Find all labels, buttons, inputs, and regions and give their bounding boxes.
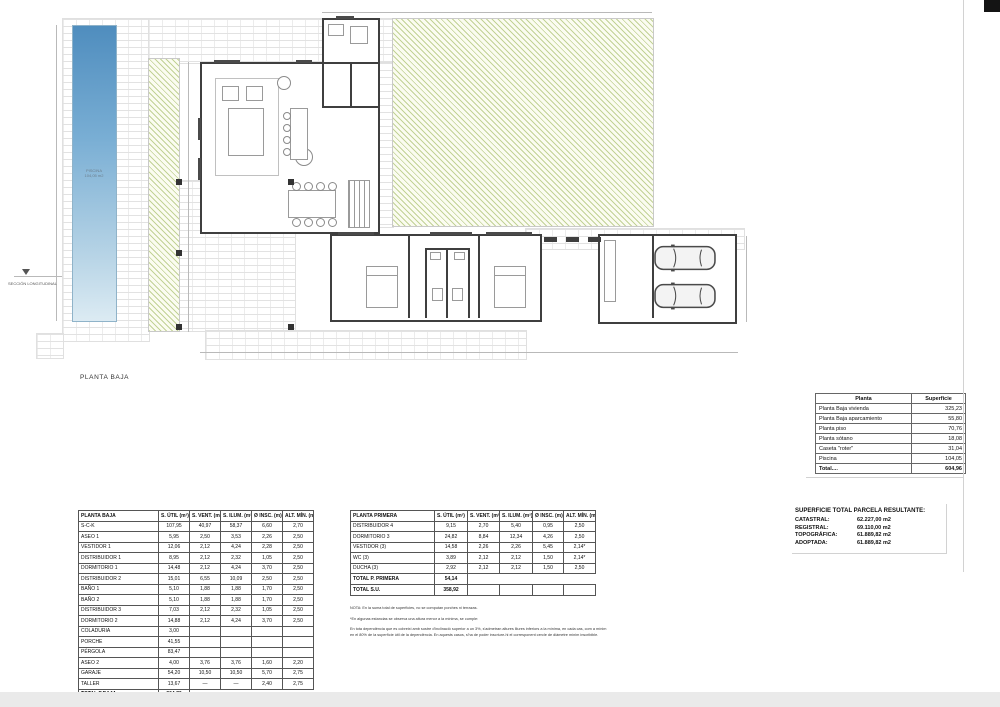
car-icon [654, 243, 716, 273]
partition [350, 62, 352, 108]
chair [304, 218, 313, 227]
dimension-line [322, 12, 652, 13]
column-header: Superficie [912, 394, 966, 404]
table-row: Piscina104,05 [816, 454, 966, 464]
table-row: ADOPTADA:61.889,82 m2 [795, 540, 950, 548]
window [214, 60, 240, 63]
parcel-table: CATASTRAL:62.227,00 m2REGISTRAL:69.110,0… [795, 517, 950, 547]
small-paving-block [36, 333, 64, 359]
dimension-line [200, 352, 738, 353]
table-row: Planta piso70,76 [816, 424, 966, 434]
planta-baja-table: PLANTA BAJAS. ÚTIL (m²)S. VENT. (m²)S. I… [78, 510, 314, 700]
table-row: Planta sótano18,08 [816, 434, 966, 444]
table-row: ASEO 15,952,503,532,262,50 [79, 532, 314, 543]
note-line: En tota dependència que es cobreixi amb … [350, 627, 608, 638]
caseta-fixture [350, 26, 368, 44]
partition [408, 236, 410, 318]
table-row: COLADURIA3,00 [79, 626, 314, 637]
table-row: VESTIDOR (3)14,582,262,265,452,14* [351, 542, 596, 553]
table-row: Caseta "roter"31,04 [816, 444, 966, 454]
table-row: DISTRIBUIDOR 18,952,122,321,052,50 [79, 553, 314, 564]
divider [946, 504, 947, 554]
table-row: Planta Baja aparcamiento55,80 [816, 414, 966, 424]
column-header: S. ILUM. (m²) [500, 511, 533, 522]
swimming-pool: PISCINA 104,05 m2 [72, 25, 117, 322]
table-row: DORMITORIO 324,828,8412,344,262,50 [351, 532, 596, 543]
wall-dash [588, 237, 601, 242]
table-row: DUCHA (3)2,922,122,121,502,50 [351, 563, 596, 574]
table-row: BAÑO 25,101,881,881,702,50 [79, 595, 314, 606]
chair [316, 182, 325, 191]
column [176, 324, 182, 330]
table-row: DISTRIBUIDOR 215,016,5510,092,502,50 [79, 574, 314, 585]
fireplace [277, 76, 291, 90]
lawn-strip [148, 58, 180, 332]
bath-wall [468, 248, 470, 318]
summary-body: Planta Baja vivienda325,23Planta Baja ap… [816, 404, 966, 464]
column-header: S. ÚTIL (m²) [159, 511, 190, 522]
terrace-paving [205, 330, 527, 360]
taller-bench [604, 240, 616, 302]
notes-block: NOTA: En la suma total de superficies, n… [350, 606, 608, 644]
column-header: S. VENT. (m²) [468, 511, 500, 522]
table-row: ASEO 24,003,763,761,602,20 [79, 658, 314, 669]
sheet: PISCINA 104,05 m2 [0, 0, 1000, 707]
window [430, 232, 472, 235]
table-row: TOTAL P. PRIMERA54,14 [351, 574, 596, 585]
stool [283, 112, 291, 120]
partition [478, 236, 480, 318]
column-header: Ø INSC. (m) [252, 511, 283, 522]
sink [430, 252, 441, 260]
plan-title: PLANTA BAJA [80, 374, 129, 381]
section-label: SECCIÓN LONGITUDINAL [8, 281, 78, 286]
partition [322, 62, 324, 108]
wc [432, 288, 443, 301]
column-header: Ø INSC. (m) [533, 511, 564, 522]
column [288, 179, 294, 185]
grand-total-row: TOTAL S.U.358,92 [351, 585, 596, 596]
section-marker-icon [22, 269, 30, 275]
table-row: DISTRIBUIDOR 49,152,705,400,952,50 [351, 521, 596, 532]
column-header: PLANTA BAJA [79, 511, 159, 522]
table-row: CATASTRAL:62.227,00 m2 [795, 517, 950, 525]
pp-total: TOTAL P. PRIMERA54,14 [351, 574, 596, 585]
sofa-l [228, 108, 264, 156]
table-row: VESTIDOR 112,062,124,242,282,50 [79, 542, 314, 553]
bath-wall [446, 248, 448, 318]
pool-area: 104,05 m2 [74, 174, 114, 179]
sofa [246, 86, 263, 101]
chair [292, 218, 301, 227]
table-row: TOPOGRÁFICA:61.889,82 m2 [795, 532, 950, 540]
summary-total: Total....604,96 [816, 464, 966, 474]
table-row: BAÑO 15,101,881,881,702,50 [79, 584, 314, 595]
table-row: DISTRIBUIDOR 37,032,122,321,052,50 [79, 605, 314, 616]
table-row: DORMITORIO 214,882,124,243,702,50 [79, 616, 314, 627]
stairs [348, 180, 370, 228]
pp-header-row: PLANTA PRIMERAS. ÚTIL (m²)S. VENT. (m²)S… [351, 511, 596, 522]
table-row: PÉRGOLA83,47 [79, 647, 314, 658]
table-row: REGISTRAL:69.110,00 m2 [795, 525, 950, 533]
bed-pillow [366, 266, 398, 276]
parcel-title: SUPERFICIE TOTAL PARCELA RESULTANTE: [795, 508, 955, 514]
divider [806, 477, 963, 478]
table-row: GARAJE54,2010,5010,505,702,75 [79, 668, 314, 679]
note-line: NOTA: En la suma total de superficies, n… [350, 606, 608, 612]
divider [792, 553, 947, 554]
table-row: Total....604,96 [816, 464, 966, 474]
car-icon [654, 281, 716, 311]
column-header: S. ILUM. (m²) [221, 511, 252, 522]
table-row: TOTAL S.U.358,92 [351, 585, 596, 596]
column-header: PLANTA PRIMERA [351, 511, 435, 522]
chair [328, 218, 337, 227]
kitchen-island [290, 108, 308, 160]
column [288, 324, 294, 330]
column [176, 250, 182, 256]
table-row: S-C-K107,9540,9758,376,602,70 [79, 521, 314, 532]
window [338, 232, 374, 235]
table-row: TALLER13,67——2,402,75 [79, 679, 314, 690]
window [198, 118, 201, 140]
pb-header-row: PLANTA BAJAS. ÚTIL (m²)S. VENT. (m²)S. I… [79, 511, 314, 522]
chair [316, 218, 325, 227]
window [486, 232, 532, 235]
summary-header-row: PlantaSuperficie [816, 394, 966, 404]
dining-table [288, 190, 336, 218]
column-header: S. ÚTIL (m²) [435, 511, 468, 522]
wall-dash [566, 237, 579, 242]
parcel-body: CATASTRAL:62.227,00 m2REGISTRAL:69.110,0… [795, 517, 950, 547]
column-header: Planta [816, 394, 912, 404]
stool [283, 124, 291, 132]
wc [452, 288, 463, 301]
table-row: Planta Baja vivienda325,23 [816, 404, 966, 414]
column-header: ALT. MÍN. (m) [564, 511, 596, 522]
pool-label: PISCINA 104,05 m2 [74, 169, 114, 179]
lawn-main [392, 18, 654, 227]
table-row: PORCHE41,55 [79, 637, 314, 648]
summary-table: PlantaSuperficie Planta Baja vivienda325… [815, 393, 966, 474]
sink [454, 252, 465, 260]
wall-dash [544, 237, 557, 242]
window [336, 16, 354, 19]
grand-total-table: TOTAL S.U.358,92 [350, 584, 596, 596]
bath-wall [425, 248, 470, 250]
parcel-block: SUPERFICIE TOTAL PARCELA RESULTANTE: CAT… [795, 508, 955, 547]
corner-mark [984, 0, 1000, 12]
bed-pillow [494, 266, 526, 276]
dimension-line [188, 62, 189, 332]
stool [283, 148, 291, 156]
column [176, 179, 182, 185]
page-edge-shadow [0, 692, 1000, 707]
column-header: S. VENT. (m²) [190, 511, 221, 522]
sofa [222, 86, 239, 101]
window [296, 60, 312, 63]
stool [283, 136, 291, 144]
column-header: ALT. MÍN. (m) [283, 511, 314, 522]
sheet-frame-line [963, 0, 964, 572]
bath-wall [425, 248, 427, 318]
window [198, 158, 201, 180]
pb-body: S-C-K107,9540,9758,376,602,70ASEO 15,952… [79, 521, 314, 689]
note-line: *En algunas estancias se observa una alt… [350, 617, 608, 623]
planta-primera-table: PLANTA PRIMERAS. ÚTIL (m²)S. VENT. (m²)S… [350, 510, 596, 585]
caseta-fixture [328, 24, 344, 36]
pp-body: DISTRIBUIDOR 49,152,705,400,952,50DORMIT… [351, 521, 596, 574]
floor-plan: PISCINA 104,05 m2 [0, 0, 1000, 390]
dimension-line [746, 236, 747, 322]
table-row: WC (3)3,892,122,121,502,14* [351, 553, 596, 564]
section-line [14, 276, 62, 277]
table-row: DORMITORIO 114,482,124,243,702,50 [79, 563, 314, 574]
chair [328, 182, 337, 191]
chair [304, 182, 313, 191]
